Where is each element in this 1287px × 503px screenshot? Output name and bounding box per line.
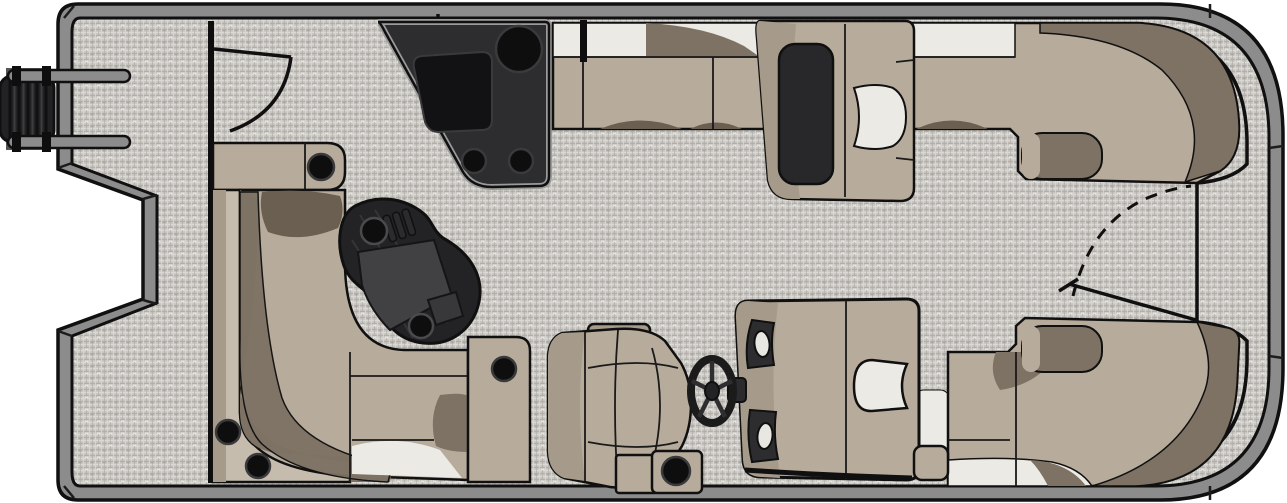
pontoon-floorplan bbox=[0, 0, 1287, 503]
helm-console bbox=[736, 299, 948, 480]
chaise-insert bbox=[779, 44, 833, 184]
port-bench-wall-stub bbox=[580, 20, 587, 62]
port-bench-end-pod-cap bbox=[1022, 133, 1040, 179]
cupholder bbox=[216, 420, 240, 444]
cupholder bbox=[246, 454, 270, 478]
helm-console-foot bbox=[914, 446, 948, 480]
chaise-pillow bbox=[854, 85, 906, 149]
cupholder bbox=[308, 154, 334, 180]
motor-mount-arm-top bbox=[8, 70, 130, 82]
pontoon-floorplan-canvas bbox=[0, 0, 1287, 503]
cupholder bbox=[409, 314, 433, 338]
chair-backrest-shade bbox=[548, 332, 585, 481]
storage-step bbox=[616, 451, 702, 493]
wheel-hub bbox=[705, 382, 719, 400]
cupholder bbox=[662, 457, 690, 485]
aft-lounge-cushion-shadow bbox=[261, 191, 343, 237]
cupholder bbox=[361, 218, 387, 244]
starboard-bench-end-pod-cap bbox=[1022, 326, 1040, 372]
motor-mount-arm-bottom bbox=[8, 136, 130, 148]
helm-windscreen bbox=[854, 360, 907, 411]
console-basin bbox=[496, 26, 542, 72]
cupholder bbox=[492, 357, 516, 381]
console-sink bbox=[414, 52, 492, 132]
aft-lounge-armrest-shadow bbox=[433, 394, 468, 452]
cupholder bbox=[509, 149, 533, 173]
cupholder bbox=[462, 149, 486, 173]
port-chaise bbox=[756, 21, 914, 201]
